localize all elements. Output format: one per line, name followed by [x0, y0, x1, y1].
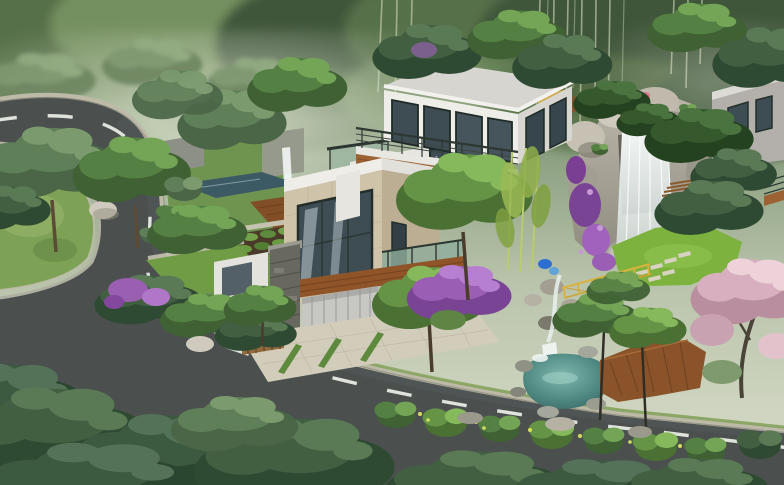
- neighbor-window-2: [756, 96, 772, 132]
- pond-inflow-foam: [532, 354, 548, 362]
- slope-rock-3: [628, 426, 652, 438]
- lawn-highlight: [644, 244, 712, 268]
- boulder-shadow: [93, 208, 119, 220]
- villa-landscape-rendering: Aerial architectural rendering of a mode…: [0, 0, 784, 485]
- slope-rock-2: [545, 417, 575, 431]
- pond-reflection: [542, 372, 578, 384]
- stair-parapet: [336, 170, 360, 222]
- rendering-stage: Aerial architectural rendering of a mode…: [0, 0, 784, 485]
- upper-side-window-2: [550, 98, 566, 148]
- blue-object: [538, 259, 552, 269]
- entrance-boulder: [186, 336, 214, 352]
- purple-tree-undergrowth: [430, 310, 466, 330]
- slope-rock-1: [457, 412, 483, 424]
- blue-object-small: [549, 267, 559, 275]
- purple-hint-top: [411, 42, 437, 58]
